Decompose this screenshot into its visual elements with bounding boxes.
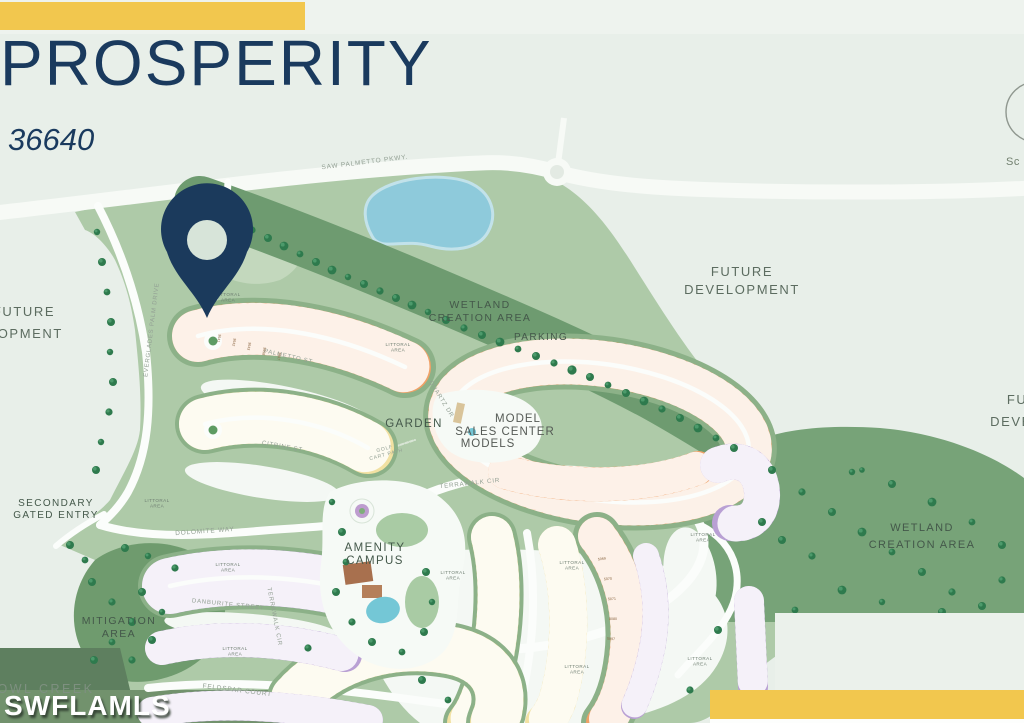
- models-label: MODELS: [461, 438, 516, 450]
- littoral-7a: LITTORAL: [690, 532, 715, 537]
- littoral-2a: LITTORAL: [385, 342, 410, 347]
- lot-number: 5080: [609, 617, 617, 621]
- model-label: MODEL: [495, 413, 541, 425]
- littoral-7b: AREA: [696, 538, 711, 543]
- littoral-5b: AREA: [565, 566, 580, 571]
- littoral-10a: LITTORAL: [687, 656, 712, 661]
- littoral-8b: AREA: [221, 568, 236, 573]
- site-map-page: SAW PALMETTO PKWY. EVERGLADES PALM DRIVE…: [0, 0, 1024, 723]
- littoral-3b: AREA: [150, 504, 165, 509]
- amenity-label-b: CAMPUS: [346, 555, 404, 567]
- littoral-6a: LITTORAL: [564, 664, 589, 669]
- lot-number: 5097: [607, 637, 615, 641]
- wetland-label-1a: WETLAND: [449, 299, 510, 311]
- future-development-label-3b: DEVELOPMENT: [990, 414, 1024, 429]
- littoral-4b: AREA: [446, 576, 461, 581]
- corner-white-strip: [710, 719, 1024, 723]
- littoral-9b: AREA: [228, 652, 243, 657]
- littoral-2b: AREA: [391, 348, 406, 353]
- lot-number: 5070: [604, 577, 612, 582]
- garden-label: GARDEN: [385, 418, 443, 430]
- littoral-10b: AREA: [693, 662, 708, 667]
- corner-yellow-bar: [710, 690, 1024, 719]
- secondary-entry-label-a: SECONDARY: [18, 498, 94, 509]
- littoral-1b: AREA: [221, 298, 236, 303]
- future-development-label-3a: FUTURE: [1007, 392, 1024, 407]
- scan-partial-label: Sc: [1006, 156, 1020, 168]
- secondary-entry-label-b: GATED ENTRY: [13, 510, 99, 521]
- mitigation-label-b: AREA: [102, 628, 136, 640]
- amenity-label-a: AMENITY: [345, 542, 406, 554]
- parking-label: PARKING: [514, 332, 568, 343]
- littoral-6b: AREA: [570, 670, 585, 675]
- littoral-4a: LITTORAL: [440, 570, 465, 575]
- future-development-label-2a: FUTURE: [0, 304, 55, 319]
- wetland-label-2a: WETLAND: [890, 522, 954, 534]
- community-title: PROSPERITY: [0, 26, 433, 100]
- lot-number-subtitle: 36640: [8, 122, 94, 158]
- future-development-label-1b: DEVELOPMENT: [684, 282, 800, 297]
- littoral-8a: LITTORAL: [215, 562, 240, 567]
- wetland-label-2b: CREATION AREA: [869, 539, 976, 551]
- sales-center-label: SALES CENTER: [455, 426, 555, 438]
- corner-white-box: [775, 613, 1024, 690]
- littoral-9a: LITTORAL: [222, 646, 247, 651]
- littoral-5a: LITTORAL: [559, 560, 584, 565]
- mls-watermark: SWFLAMLS: [4, 690, 171, 722]
- littoral-3a: LITTORAL: [144, 498, 169, 503]
- mitigation-label-a: MITIGATION: [82, 615, 156, 627]
- future-development-label-2b: DEVELOPMENT: [0, 326, 63, 341]
- pond: [365, 177, 492, 249]
- lot-number: 5071: [608, 597, 616, 601]
- future-development-label-1a: FUTURE: [711, 264, 773, 279]
- wetland-label-1b: CREATION AREA: [429, 312, 532, 324]
